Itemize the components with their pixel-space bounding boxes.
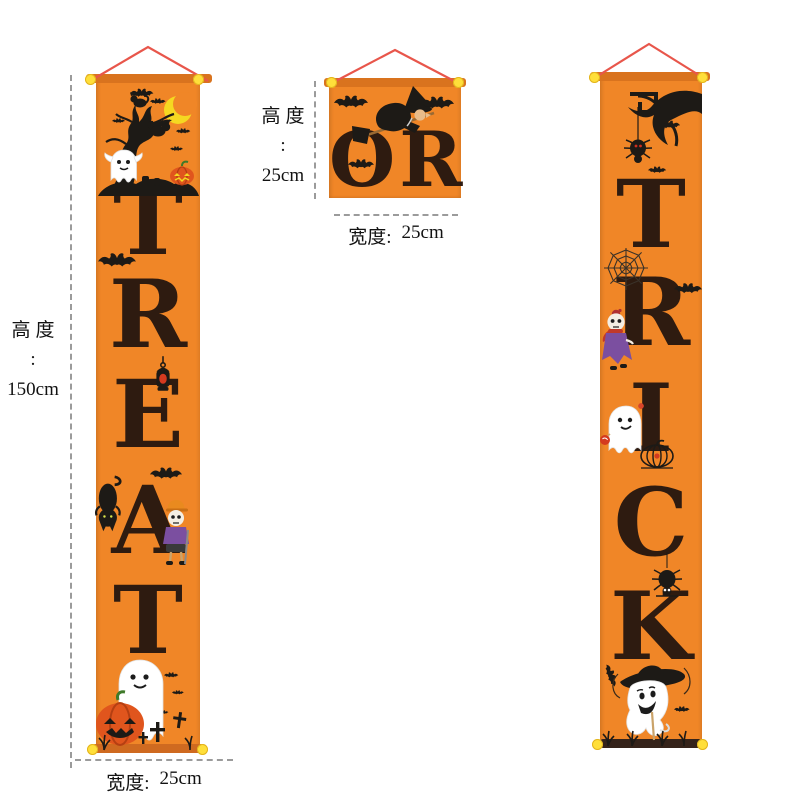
bat-icon xyxy=(674,282,702,296)
spiderweb-icon xyxy=(602,248,650,292)
width-value: 25cm xyxy=(160,768,202,795)
hanging-string xyxy=(592,40,706,80)
bat-icon xyxy=(348,158,374,171)
branch-spider-scene xyxy=(600,82,702,187)
lantern-icon xyxy=(152,356,174,396)
banner-letter: E xyxy=(96,368,200,462)
ghost-witch-hat-scene xyxy=(596,650,702,750)
hanging-cat-icon xyxy=(92,474,126,534)
ghost-icon xyxy=(105,150,143,182)
mid-width-dashed-line xyxy=(334,214,458,216)
bat-icon xyxy=(150,466,182,482)
spooky-tree-scene xyxy=(96,84,200,202)
pin-icon xyxy=(697,72,708,83)
mid-height-dashed-line xyxy=(314,81,316,199)
bat-icon xyxy=(98,250,136,272)
height-value: 150cm xyxy=(0,375,66,404)
hanging-string xyxy=(328,46,462,86)
left-width-annotation: 宽度: 25cm xyxy=(70,768,238,795)
left-width-dashed-line xyxy=(75,759,233,761)
pin-icon xyxy=(87,744,98,755)
pin-icon xyxy=(589,72,600,83)
mid-height-annotation: 高度 : 25cm xyxy=(254,102,312,190)
height-value: 25cm xyxy=(254,161,312,190)
spider-icon xyxy=(624,140,652,164)
pumpkin-icon xyxy=(170,162,194,185)
pin-icon xyxy=(453,77,464,88)
skeleton-robe-icon xyxy=(598,308,638,376)
pumpkin-lantern-icon xyxy=(638,438,676,470)
bat-icon xyxy=(334,94,368,111)
pin-icon xyxy=(592,739,603,750)
left-height-annotation: 高度 : 150cm xyxy=(0,316,66,404)
width-label: 宽度: xyxy=(106,768,149,795)
pin-icon xyxy=(193,74,204,85)
pin-icon xyxy=(326,77,337,88)
banner-letter: R xyxy=(96,268,200,362)
pin-icon xyxy=(697,739,708,750)
pin-icon xyxy=(85,74,96,85)
bat-icon xyxy=(420,95,454,112)
grass-icon xyxy=(603,731,686,746)
colon: : xyxy=(0,345,66,374)
ghost-pumpkin-scene xyxy=(96,652,200,752)
colon: : xyxy=(254,131,312,160)
skeleton-kid-icon xyxy=(158,498,194,570)
left-height-dashed-line xyxy=(70,75,72,768)
height-label: 高度 xyxy=(254,102,312,131)
height-label: 高度 xyxy=(0,316,66,345)
pin-icon xyxy=(197,744,208,755)
mid-width-annotation: 宽度: 25cm xyxy=(330,222,462,249)
product-dimension-image: 高度 : 150cm 宽度: 25cm 高度 : 25cm 宽度: 25cm T… xyxy=(0,0,800,800)
spider-icon xyxy=(650,552,684,602)
width-label: 宽度: xyxy=(348,222,391,249)
width-value: 25cm xyxy=(402,222,444,249)
